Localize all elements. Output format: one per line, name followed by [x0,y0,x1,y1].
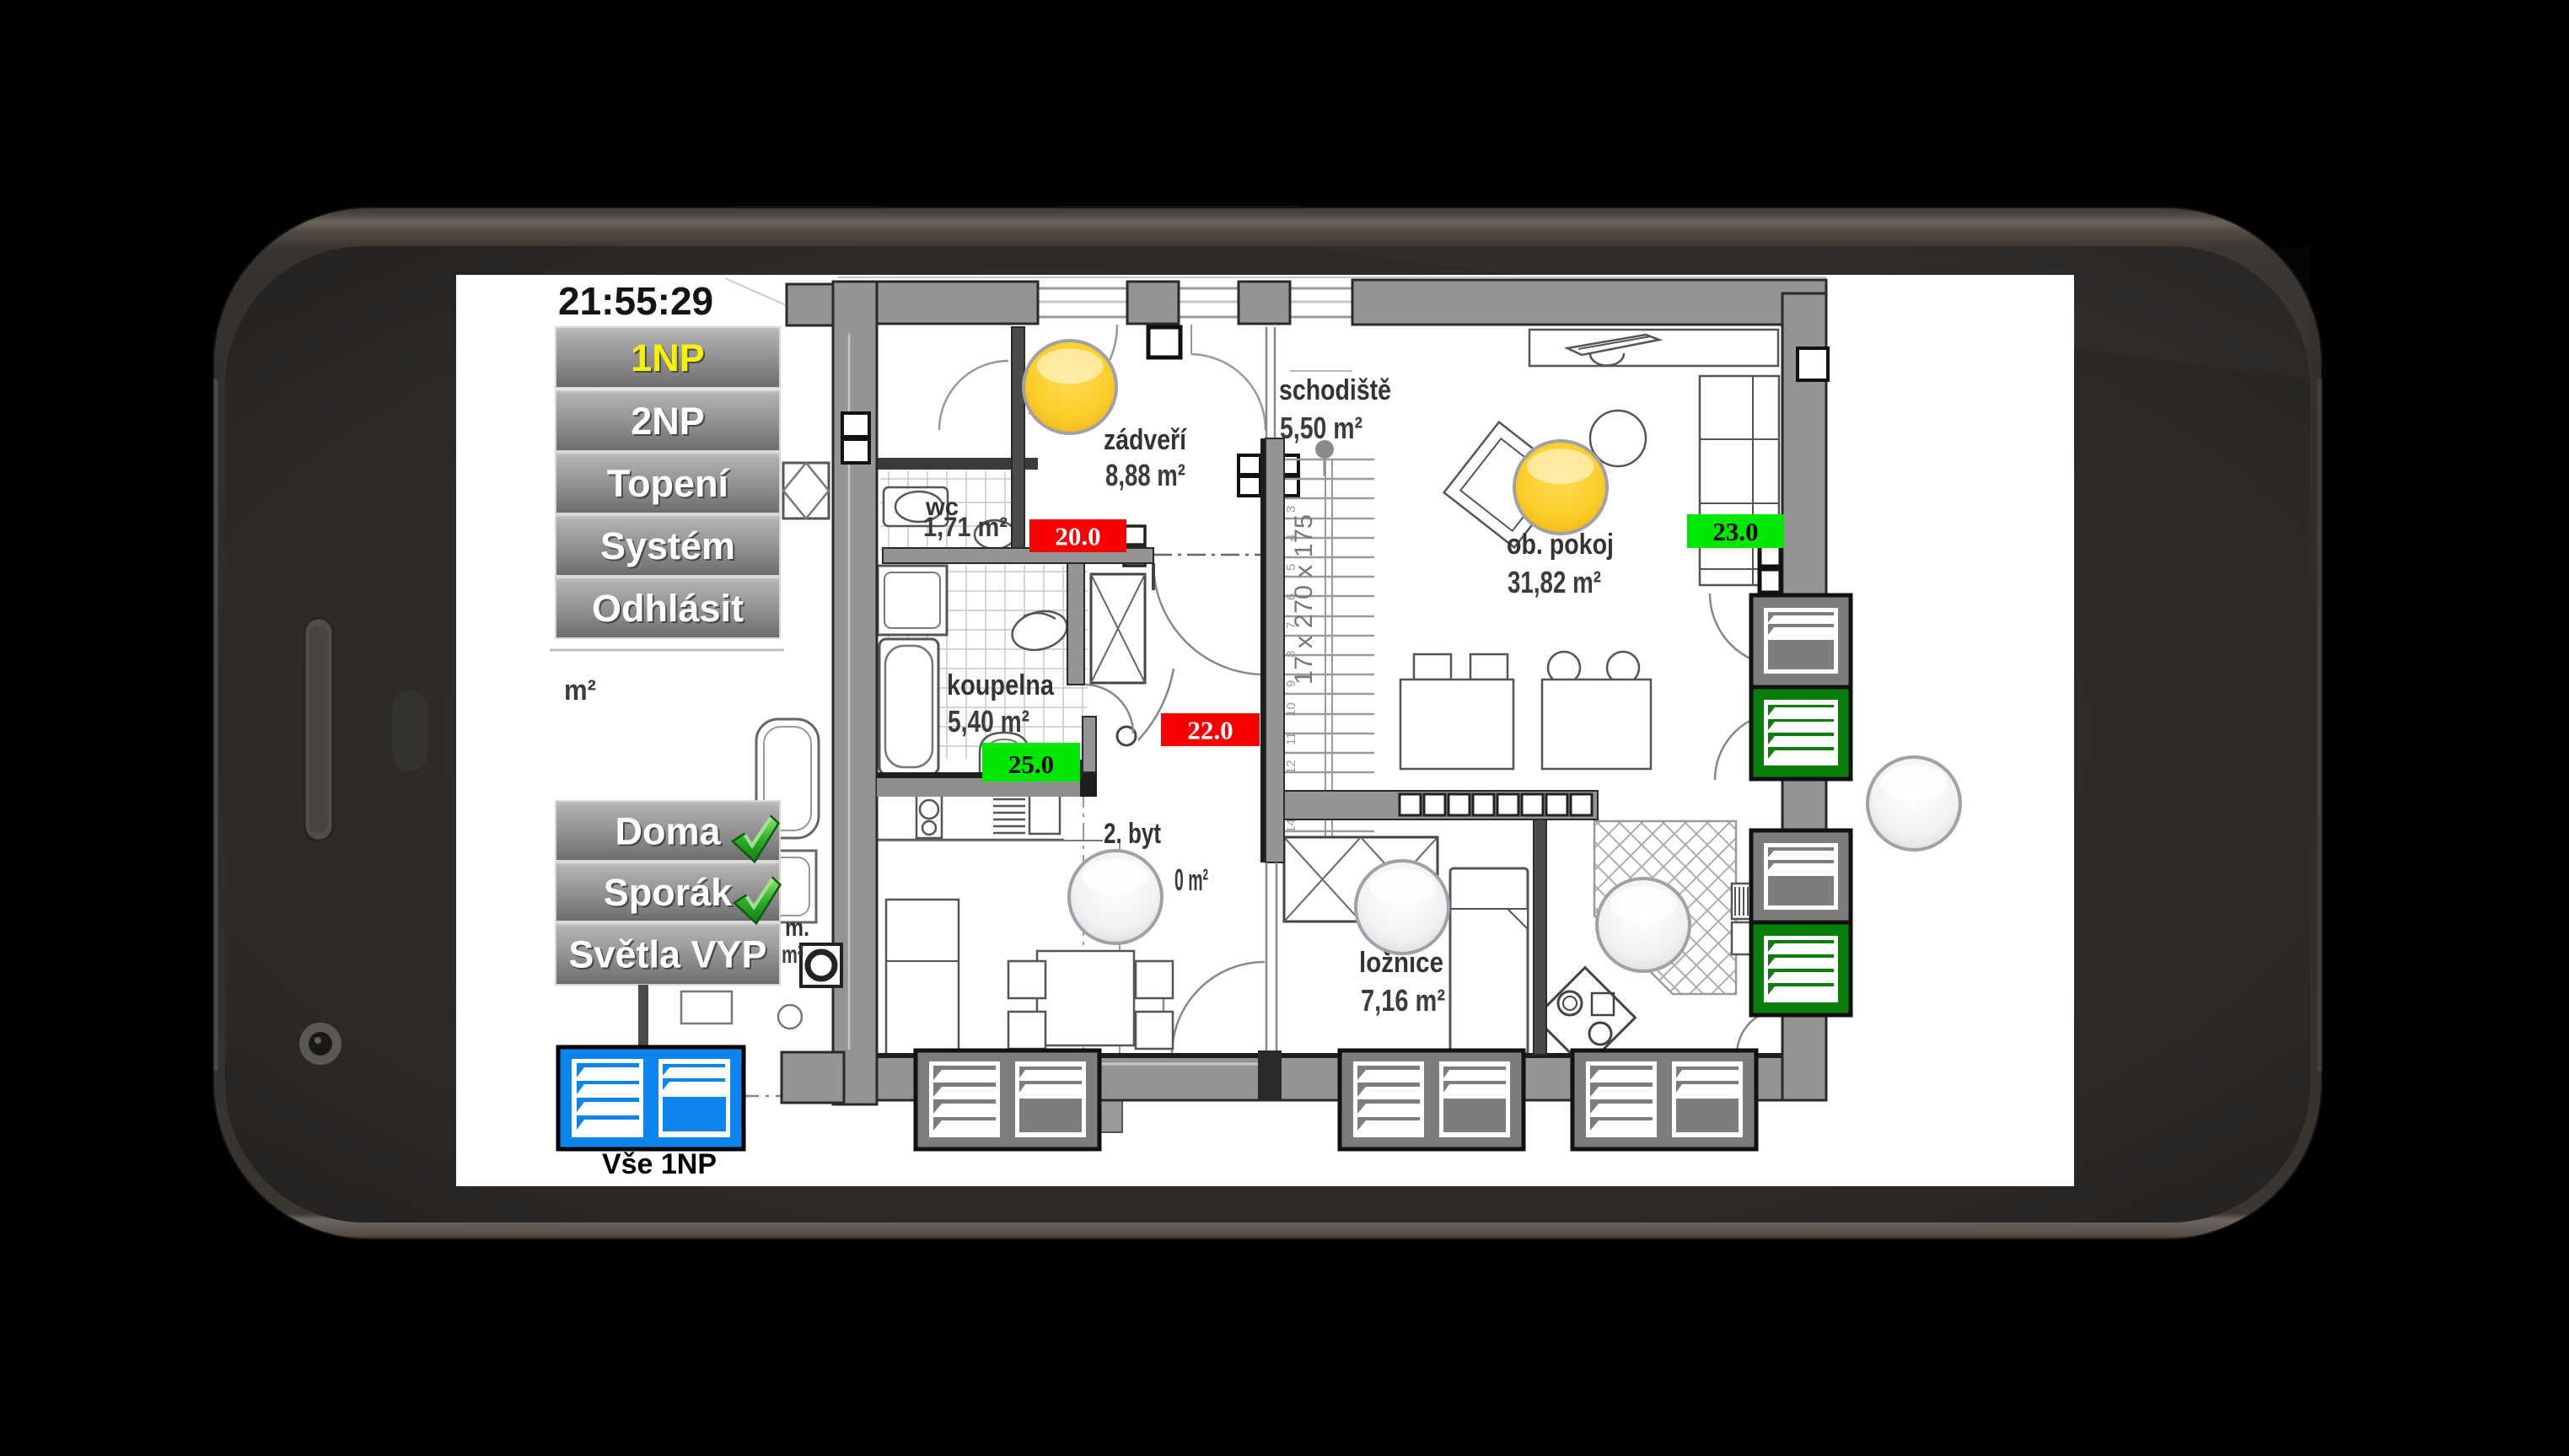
svg-text:12: 12 [1284,760,1298,774]
svg-text:0 m²: 0 m² [1174,862,1208,897]
svg-text:1NP: 1NP [631,336,705,379]
svg-text:Doma: Doma [615,810,721,853]
svg-text:17 x 270 x 175: 17 x 270 x 175 [1290,514,1318,685]
svg-text:14: 14 [1284,819,1298,833]
svg-text:21:55:29: 21:55:29 [558,279,713,323]
svg-text:5,40 m²: 5,40 m² [948,704,1029,739]
svg-text:koupelna: koupelna [947,669,1055,701]
svg-text:5,50 m²: 5,50 m² [1280,411,1362,445]
svg-text:3: 3 [1284,506,1298,513]
svg-text:22.0: 22.0 [1187,715,1233,744]
svg-text:m.: m. [785,914,809,942]
svg-text:11: 11 [1284,732,1298,745]
svg-text:25.0: 25.0 [1008,749,1054,779]
svg-text:31,82 m²: 31,82 m² [1508,565,1601,599]
svg-text:Světla VYP: Světla VYP [568,933,766,976]
svg-text:zádveří: zádveří [1104,424,1187,456]
svg-text:Sporák: Sporák [604,871,734,914]
svg-text:Vše 1NP: Vše 1NP [602,1148,717,1180]
svg-text:10: 10 [1284,702,1298,717]
svg-text:7,16 m²: 7,16 m² [1361,983,1445,1018]
svg-text:Systém: Systém [600,524,735,567]
svg-text:Topení: Topení [607,462,730,505]
svg-text:8,88 m²: 8,88 m² [1105,458,1185,492]
svg-text:2NP: 2NP [631,400,705,443]
svg-text:m²: m² [782,941,803,969]
svg-text:23.0: 23.0 [1712,517,1758,546]
svg-text:20.0: 20.0 [1055,521,1100,551]
svg-text:1,71 m²: 1,71 m² [923,512,1008,542]
svg-text:m²: m² [564,674,596,707]
svg-text:Odhlásit: Odhlásit [592,587,744,630]
svg-text:schodiště: schodiště [1279,374,1391,406]
svg-text:2. byt: 2. byt [1104,818,1161,850]
